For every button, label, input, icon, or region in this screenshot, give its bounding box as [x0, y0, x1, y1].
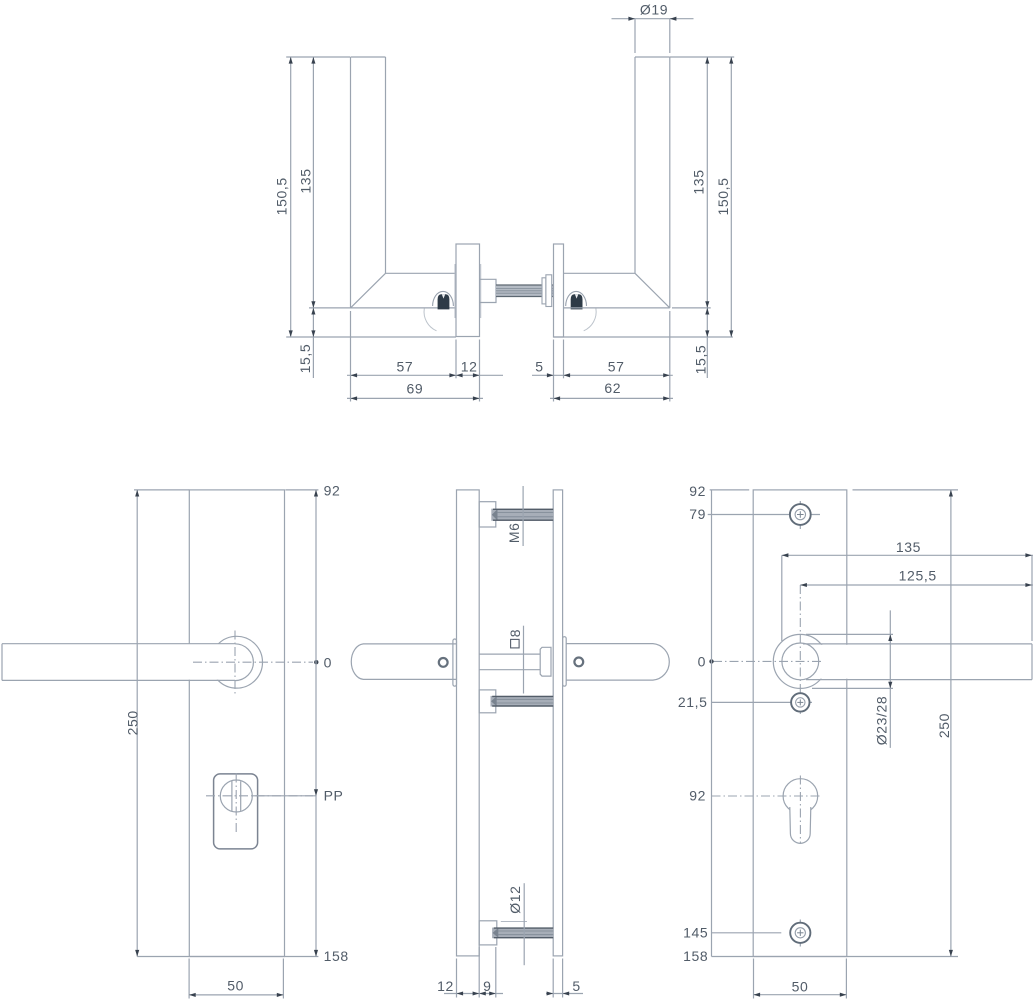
svg-text:62: 62 [604, 380, 621, 396]
svg-text:92: 92 [324, 482, 341, 498]
svg-text:150,5: 150,5 [274, 177, 290, 215]
svg-text:12: 12 [437, 978, 454, 994]
svg-text:15,5: 15,5 [692, 345, 708, 375]
svg-text:50: 50 [792, 979, 809, 995]
svg-text:50: 50 [227, 977, 244, 993]
svg-text:135: 135 [690, 169, 706, 194]
svg-text:135: 135 [298, 168, 314, 193]
svg-text:Ø12: Ø12 [507, 885, 523, 913]
svg-text:92: 92 [689, 483, 706, 499]
svg-text:21,5: 21,5 [678, 694, 708, 710]
svg-text:57: 57 [608, 359, 625, 375]
svg-text:135: 135 [896, 539, 921, 555]
svg-text:158: 158 [324, 948, 349, 964]
svg-text:57: 57 [397, 358, 414, 374]
svg-text:9: 9 [483, 978, 491, 994]
svg-text:79: 79 [689, 506, 706, 522]
svg-text:125,5: 125,5 [899, 567, 937, 583]
svg-text:PP: PP [324, 787, 344, 803]
svg-text:69: 69 [407, 380, 424, 396]
svg-text:158: 158 [683, 948, 708, 964]
svg-text:M6: M6 [506, 522, 522, 543]
svg-text:150,5: 150,5 [715, 177, 731, 215]
svg-text:5: 5 [572, 978, 580, 994]
svg-text:5: 5 [535, 359, 543, 375]
svg-text:15,5: 15,5 [297, 344, 313, 374]
svg-text:145: 145 [683, 925, 708, 941]
svg-text:92: 92 [689, 788, 706, 804]
svg-text:Ø19: Ø19 [640, 2, 668, 18]
svg-text:250: 250 [936, 713, 952, 738]
svg-text:0: 0 [698, 653, 706, 669]
svg-text:8: 8 [507, 629, 523, 637]
svg-text:250: 250 [125, 710, 141, 735]
svg-text:0: 0 [324, 654, 332, 670]
svg-text:Ø23/28: Ø23/28 [874, 696, 890, 746]
svg-text:12: 12 [461, 358, 478, 374]
